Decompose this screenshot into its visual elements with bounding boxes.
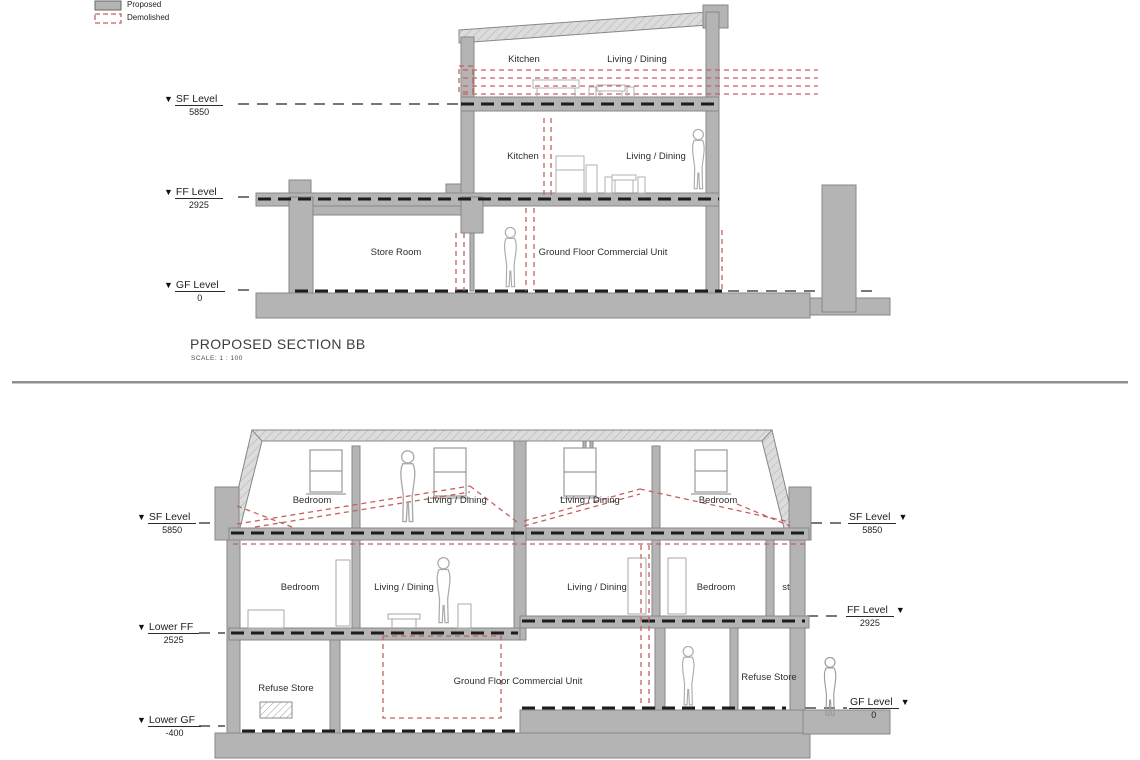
person-figure [437,558,450,623]
room-label-kitchen-2f: Kitchen [508,54,540,65]
proposed-walls [256,5,890,318]
drawing-title: PROPOSED SECTION BB [190,336,366,352]
room-label-commercial-unit: Ground Floor Commercial Unit [539,247,668,258]
ground-strip [256,293,810,318]
legend-demolished-label: Demolished [127,13,169,22]
room-label-commercial-unit-2: Ground Floor Commercial Unit [454,676,583,687]
room-label-living-2f-left: Living / Dining [427,495,487,506]
level-text: FF Level 2925 [846,604,894,628]
level-text: SF Level 5850 [848,511,896,535]
person-figure [505,227,517,286]
boundary-wall [822,185,856,312]
level-triangle-icon: ▼ [896,605,905,616]
level-marker-sf-left: ▼ SF Level 5850 [137,511,196,535]
level-marker-sf: ▼ SF Level 5850 [164,93,223,117]
hatched-store-box [260,702,292,718]
level-text: GF Level 0 [175,279,225,303]
level-name: FF Level [846,604,894,617]
level-value: 2525 [148,635,199,645]
level-marker-lower-ff: ▼ Lower FF 2525 [137,621,199,645]
level-value: 5850 [175,107,223,117]
level-marker-sf-right: SF Level 5850 ▼ [848,511,907,535]
room-label-refuse-left: Refuse Store [258,683,313,694]
level-value: -400 [148,728,201,738]
room-label-living-1f: Living / Dining [626,151,686,162]
legend-swatches [95,1,121,23]
sloped-roof [459,12,708,43]
level-name: FF Level [175,186,223,199]
level-name: GF Level [849,696,899,709]
level-value: 2925 [846,618,894,628]
level-triangle-icon: ▼ [137,512,146,523]
level-value: 2925 [175,200,223,210]
demolished-swatch-icon [95,14,121,23]
level-name: GF Level [175,279,225,292]
level-text: SF Level 5850 [175,93,223,117]
room-label-bedroom-1f-right: Bedroom [697,582,736,593]
drawing-scale: SCALE: 1 : 100 [191,355,243,362]
proposed-swatch-icon [95,1,121,10]
legend-proposed-label: Proposed [127,0,161,9]
room-label-living-2f: Living / Dining [607,54,667,65]
level-value: 0 [849,710,899,720]
room-label-store-room: Store Room [371,247,422,258]
level-marker-ff: ▼ FF Level 2925 [164,186,223,210]
level-text: FF Level 2925 [175,186,223,210]
level-triangle-icon: ▼ [137,622,146,633]
level-triangle-icon: ▼ [901,697,910,708]
level-marker-gf: ▼ GF Level 0 [164,279,225,303]
person-figure [401,451,415,522]
level-name: Lower GF [148,714,201,727]
flat-roof [252,430,772,441]
level-text: GF Level 0 [849,696,899,720]
room-label-refuse-right: Refuse Store [741,672,796,683]
level-marker-ff-right: FF Level 2925 ▼ [846,604,905,628]
level-value: 5850 [148,525,196,535]
level-name: Lower FF [148,621,199,634]
room-label-living-1f-right: Living / Dining [567,582,627,593]
level-triangle-icon: ▼ [164,280,173,291]
room-label-st: st [782,582,789,593]
level-name: SF Level [148,511,196,524]
person-figure [683,646,694,704]
room-label-living-1f-left: Living / Dining [374,582,434,593]
level-name: SF Level [848,511,896,524]
room-label-bedroom-2f-left: Bedroom [293,495,332,506]
level-triangle-icon: ▼ [164,187,173,198]
room-label-bedroom-2f-right: Bedroom [699,495,738,506]
level-text: Lower GF -400 [148,714,201,738]
sheet-divider [12,381,1128,384]
section-two-drawing [199,430,890,758]
level-value: 0 [175,293,225,303]
level-triangle-icon: ▼ [898,512,907,523]
room-label-kitchen-1f: Kitchen [507,151,539,162]
room-label-living-2f-right: Living / Dining [560,495,620,506]
room-label-bedroom-1f-left: Bedroom [281,582,320,593]
walking-person-figure [824,657,835,715]
level-marker-gf-right: GF Level 0 ▼ [849,696,910,720]
level-text: SF Level 5850 [148,511,196,535]
section-bb-drawing [238,5,890,318]
level-value: 5850 [848,525,896,535]
architectural-sections-sheet: Proposed Demolished ▼ SF Level 5850 ▼ FF… [0,0,1140,760]
level-name: SF Level [175,93,223,106]
level-triangle-icon: ▼ [137,715,146,726]
ground-strip [215,733,810,758]
person-figure [693,129,705,188]
level-marker-lower-gf: ▼ Lower GF -400 [137,714,201,738]
level-triangle-icon: ▼ [164,94,173,105]
level-text: Lower FF 2525 [148,621,199,645]
